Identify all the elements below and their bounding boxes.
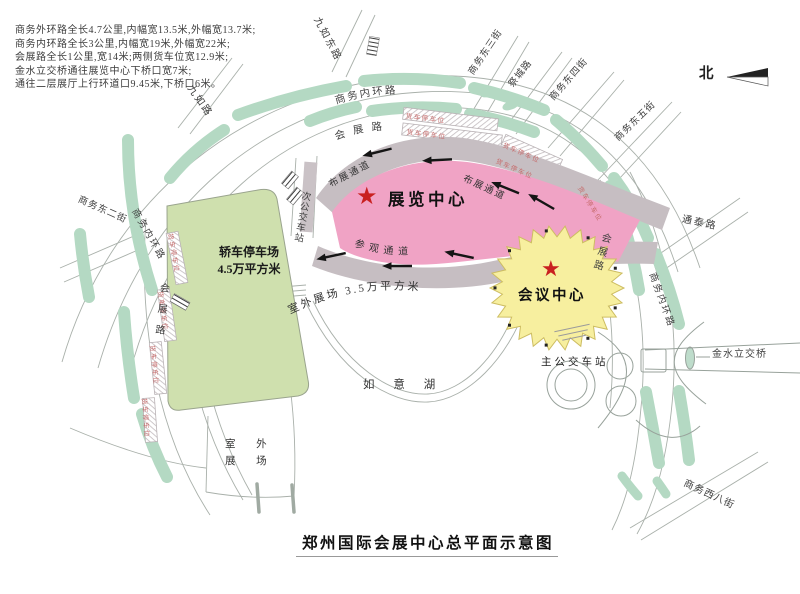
legend-line: 商务内环路全长3公里,内幅宽19米,外幅宽22米; xyxy=(15,38,256,52)
jinshui-interchange-label: 金水立交桥 xyxy=(712,350,767,360)
exhibition-center-label: 展览中心 xyxy=(388,192,468,209)
north-arrow-icon xyxy=(727,68,768,86)
outdoor-ground-sw-label: 室 外 展 场 xyxy=(225,437,276,470)
compass-north-label: 北 xyxy=(699,67,714,82)
main-bus-station-label: 主公交车站 xyxy=(541,358,609,369)
outdoor-ground-arc-label: 室外展场 3.5万平方米 xyxy=(286,278,422,316)
huizhan-road-label-top: 会展路 xyxy=(333,119,390,142)
ruyi-lake-label: 如 意 湖 xyxy=(363,380,443,392)
exhibition-band xyxy=(300,137,670,288)
page-title: 郑州国际会展中心总平面示意图 xyxy=(302,531,554,553)
title-underline xyxy=(296,556,558,557)
legend-line: 商务外环路全长4.7公里,内幅宽13.5米,外幅宽13.7米; xyxy=(15,24,256,38)
car-park-label: 轿车停车场 4.5万平方米 xyxy=(186,244,312,278)
truck-parking-label: 货车停车位 xyxy=(140,398,149,438)
star-icon: ★ xyxy=(356,185,378,209)
site-plan: 商务内环路 会展路 参观通道 室外展场 3.5万平方米 商务外环路全长4.7公里… xyxy=(0,0,800,594)
legend-line: 通往二层展厅上行环道口9.45米,下桥口6米。 xyxy=(15,78,256,92)
legend-line: 会展路全长1公里,宽14米;两侧货车位宽12.9米; xyxy=(15,51,256,65)
legend: 商务外环路全长4.7公里,内幅宽13.5米,外幅宽13.7米; 商务内环路全长3… xyxy=(15,24,256,92)
legend-line: 金水立交桥通往展览中心下桥口宽7米; xyxy=(15,65,256,79)
svg-text:会展路: 会展路 xyxy=(333,119,390,142)
svg-text:室外展场 3.5万平方米: 室外展场 3.5万平方米 xyxy=(286,278,422,316)
star-icon: ★ xyxy=(541,258,561,280)
conference-center-label: 会议中心 xyxy=(518,289,586,304)
car-park-area xyxy=(167,189,309,410)
